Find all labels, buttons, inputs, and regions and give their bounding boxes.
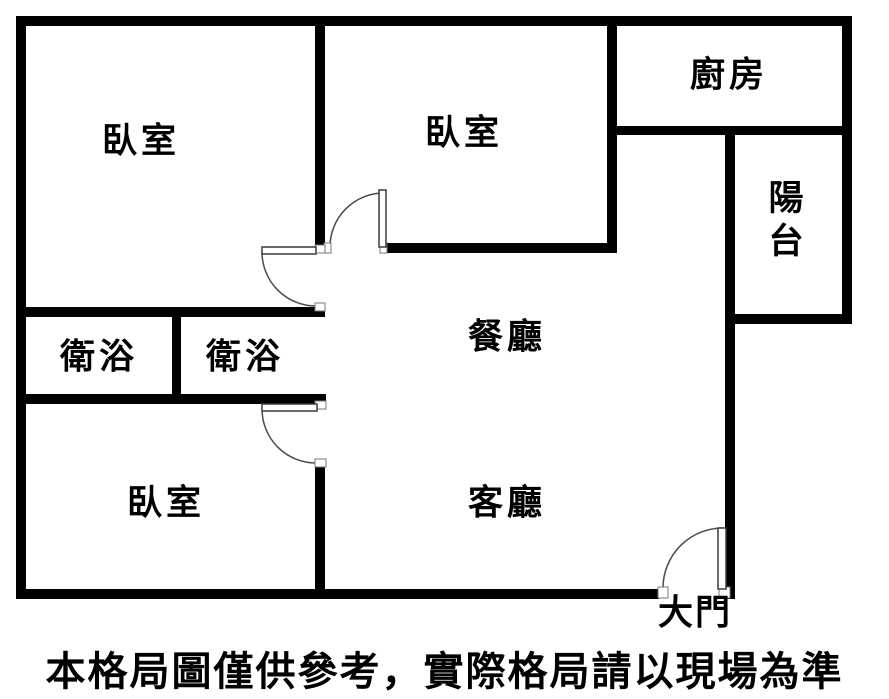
wall-bedroom-topleft-bottom <box>16 307 325 317</box>
room-label-kitchen: 廚房 <box>690 58 768 93</box>
door-bedroom-topleft-arc <box>262 252 316 306</box>
wall-outer-bottom <box>16 589 659 599</box>
door-bedroom-middle-leaf <box>379 190 386 247</box>
door-main-leaf <box>718 528 726 589</box>
main-door-label: 大門 <box>658 596 732 631</box>
door-bedroom-topleft <box>262 245 325 311</box>
wall-kitchen-bottom <box>607 126 852 135</box>
door-bedroom-bottom-jamb-bottom <box>315 459 326 467</box>
room-label-bathroom-left: 衛浴 <box>60 340 138 375</box>
wall-bedroom-middle-bottom <box>387 243 617 253</box>
wall-kitchen-left <box>607 16 617 253</box>
room-label-bedroom-top-left: 臥室 <box>102 124 180 159</box>
door-bedroom-middle <box>324 190 387 253</box>
door-bedroom-topleft-leaf <box>262 247 316 254</box>
room-label-bedroom-top-middle: 臥室 <box>425 116 503 151</box>
room-label-balcony: 陽台 <box>768 177 805 263</box>
wall-outer-top <box>16 16 852 26</box>
floorplan-canvas: 臥室 臥室 廚房 陽台 衛浴 衛浴 餐廳 客廳 臥室 大門 本格局圖僅供參考，實… <box>0 0 889 699</box>
room-label-bedroom-bottom: 臥室 <box>127 486 205 521</box>
door-bedroom-middle-arc <box>330 193 384 247</box>
door-main-arc <box>663 528 723 588</box>
room-label-living: 客廳 <box>468 486 546 521</box>
room-label-bathroom-right: 衛浴 <box>206 340 284 375</box>
wall-bathroom-bottom <box>16 394 326 404</box>
wall-balcony-bottom <box>725 314 852 324</box>
wall-outer-right <box>842 16 852 324</box>
room-label-dining: 餐廳 <box>468 320 546 355</box>
wall-bathroom-divider <box>172 317 181 394</box>
wall-bedroom-topleft-right <box>315 16 325 247</box>
wall-bedroom-bottom-right <box>315 462 325 599</box>
door-bedroom-bottom-arc <box>262 409 316 463</box>
door-bedroom-topleft-jamb-bottom <box>315 303 325 311</box>
door-bedroom-bottom-leaf <box>262 404 317 411</box>
door-bedroom-bottom <box>262 401 326 467</box>
disclaimer-text: 本格局圖僅供參考，實際格局請以現場為準 <box>0 652 889 692</box>
door-main <box>658 528 730 598</box>
